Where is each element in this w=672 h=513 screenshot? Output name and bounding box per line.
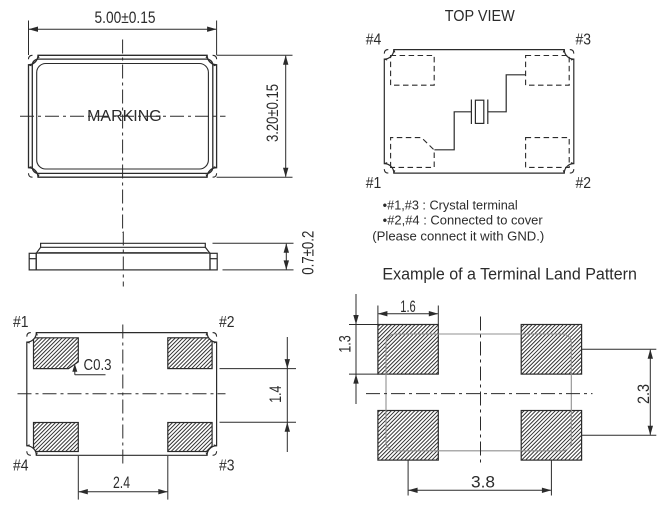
svg-text:#1: #1	[366, 175, 382, 192]
svg-text:MARKING: MARKING	[87, 108, 162, 125]
svg-text:TOP VIEW: TOP VIEW	[445, 8, 515, 25]
svg-text:#4: #4	[366, 32, 382, 49]
svg-text:0.7±0.2: 0.7±0.2	[300, 231, 318, 275]
svg-text:1.3: 1.3	[337, 335, 355, 352]
svg-text:(Please connect it with GND.): (Please connect it with GND.)	[372, 230, 544, 244]
svg-text:•#1,#3 : Crystal terminal: •#1,#3 : Crystal terminal	[383, 199, 518, 213]
svg-text:#3: #3	[576, 32, 592, 49]
svg-text:Example of a Terminal Land Pat: Example of a Terminal Land Pattern	[382, 265, 637, 284]
svg-text:1.4: 1.4	[267, 386, 285, 403]
svg-text:3.8: 3.8	[471, 474, 495, 492]
svg-text:5.00±0.15: 5.00±0.15	[95, 9, 156, 27]
svg-text:2.4: 2.4	[113, 474, 130, 492]
svg-text:#2: #2	[219, 314, 235, 331]
svg-text:3.20±0.15: 3.20±0.15	[264, 84, 282, 142]
svg-text:•#2,#4 : Connected to cover: •#2,#4 : Connected to cover	[383, 213, 543, 227]
svg-text:#2: #2	[576, 175, 592, 192]
svg-text:1.6: 1.6	[400, 298, 416, 316]
svg-text:C0.3: C0.3	[84, 357, 112, 374]
svg-text:2.3: 2.3	[635, 384, 653, 404]
svg-text:#4: #4	[13, 458, 29, 475]
svg-text:#3: #3	[219, 458, 235, 475]
svg-text:#1: #1	[13, 314, 29, 331]
